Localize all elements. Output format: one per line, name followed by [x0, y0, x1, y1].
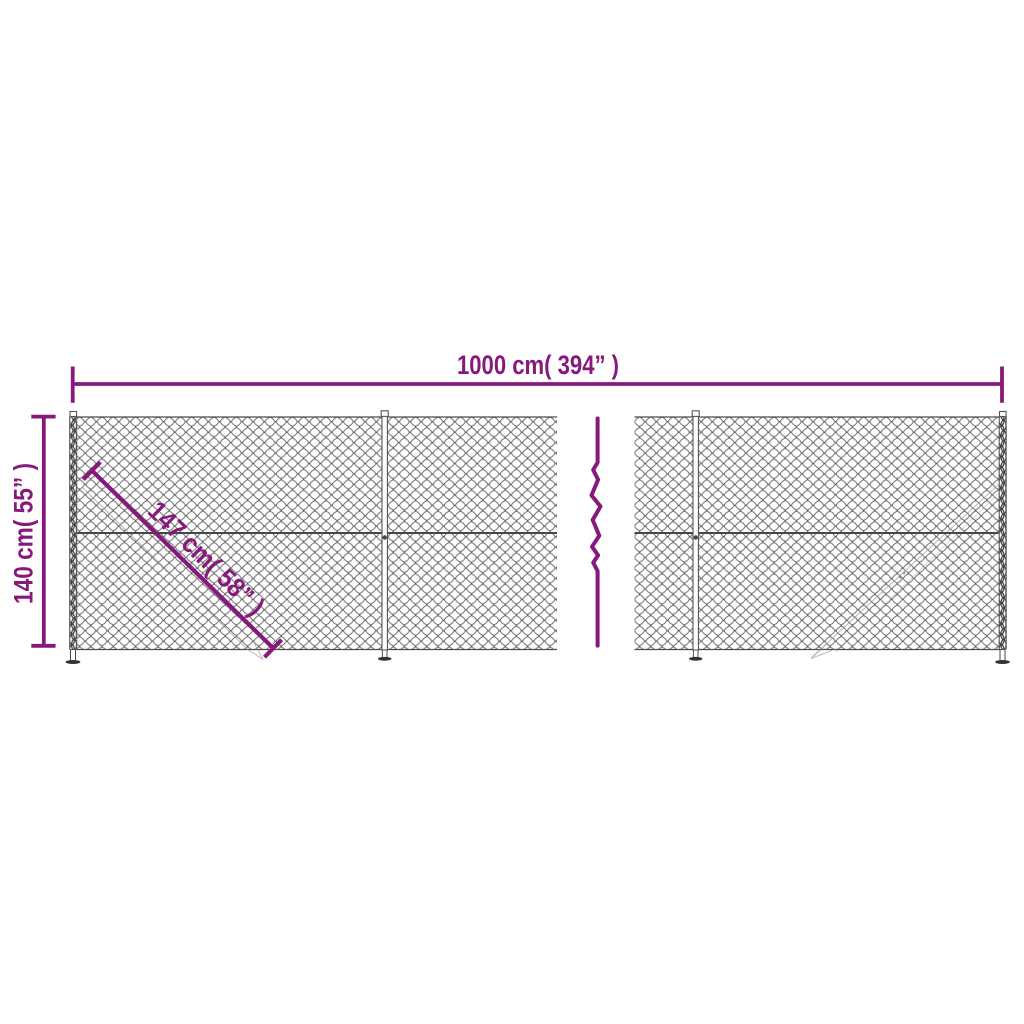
svg-text:1000 cm( 394” ): 1000 cm( 394” )	[457, 350, 619, 380]
svg-text:140 cm( 55” ): 140 cm( 55” )	[8, 463, 38, 604]
